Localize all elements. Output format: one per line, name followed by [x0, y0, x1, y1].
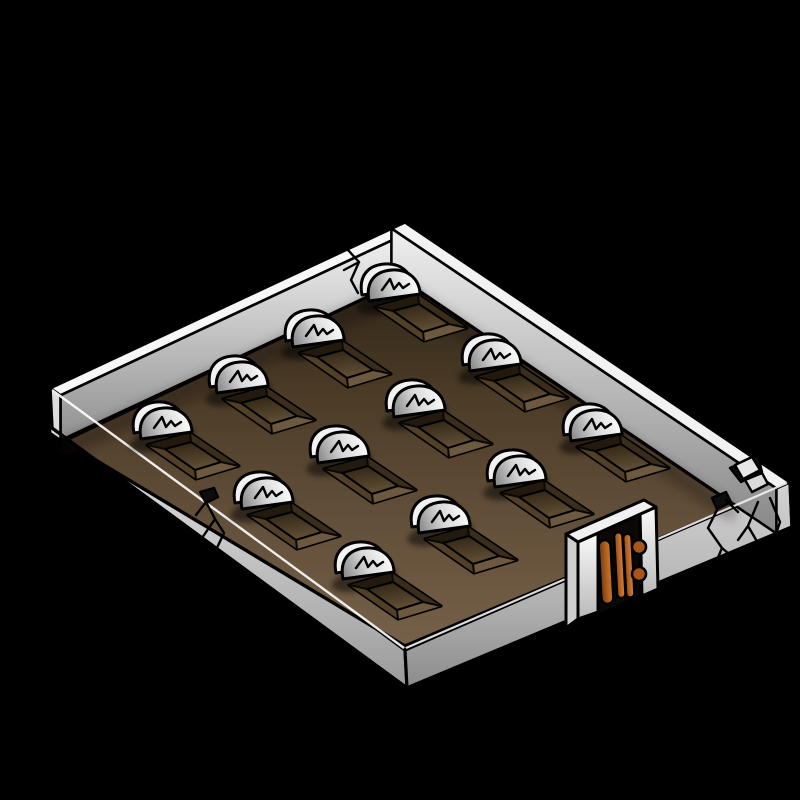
- gate-left-jamb-side: [566, 534, 578, 628]
- gate-left-jamb: [578, 533, 598, 619]
- gate-hinge-knob-top: [632, 540, 646, 554]
- graveyard-illustration: Isometric walled graveyard illustration …: [0, 0, 800, 800]
- gate-door-left-plank: [598, 540, 613, 605]
- gate-hinge-knob-bottom: [632, 567, 646, 581]
